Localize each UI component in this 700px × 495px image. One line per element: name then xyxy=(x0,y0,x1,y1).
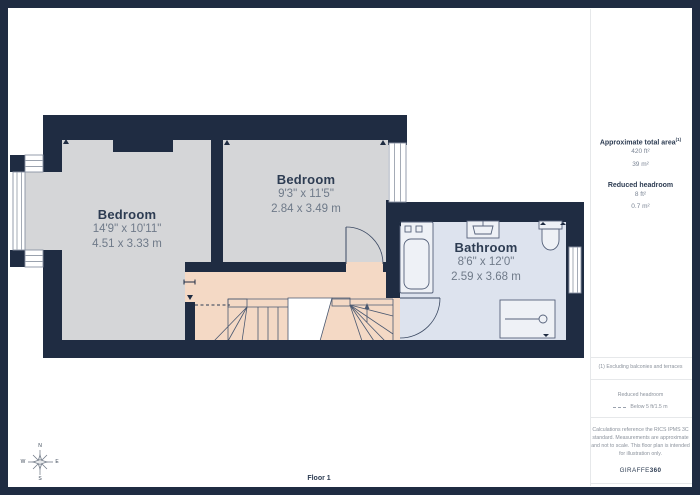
room-label-bathroom: Bathroom 8'6" x 12'0" 2.59 x 3.68 m xyxy=(451,240,521,284)
room-name: Bathroom xyxy=(451,240,521,255)
compass-south-label: S xyxy=(38,476,41,482)
brand-logo: GIRAFFE360 xyxy=(589,467,692,474)
reduced-headroom-metric: 0.7 m² xyxy=(589,201,692,213)
sidebar-legend: Reduced headroom Below 5 ft/1.5 m xyxy=(589,391,692,411)
total-area-imperial: 420 ft² xyxy=(589,146,692,158)
bay-window-west xyxy=(13,172,25,250)
room-label-bedroom-2: Bedroom 9'3" x 11'5" 2.84 x 3.49 m xyxy=(271,172,341,216)
bay-window-south xyxy=(25,250,43,267)
sidebar-divider xyxy=(590,379,692,380)
sidebar-divider-vertical xyxy=(590,9,591,486)
bay-window-north xyxy=(25,155,43,172)
compass-icon xyxy=(28,450,53,475)
sidebar-area-section: Approximate total area(1) 420 ft² 39 m² … xyxy=(589,137,692,214)
reduced-headroom-heading: Reduced headroom xyxy=(589,182,692,189)
sidebar-divider xyxy=(590,417,692,418)
compass-west-label: W xyxy=(21,459,26,465)
legend-heading: Reduced headroom xyxy=(589,391,692,399)
floor-label: Floor 1 xyxy=(307,475,330,482)
room-name: Bedroom xyxy=(271,172,341,187)
total-area-footnote-marker: (1) xyxy=(676,137,682,142)
sink xyxy=(467,221,499,238)
chimney-breast xyxy=(113,135,173,152)
reduced-headroom-dash-icon xyxy=(613,407,626,408)
compass-east-label: E xyxy=(55,459,58,465)
room-dimensions-metric: 4.51 x 3.33 m xyxy=(92,237,162,252)
room-dimensions-metric: 2.59 x 3.68 m xyxy=(451,270,521,285)
room-dimensions-imperial: 8'6" x 12'0" xyxy=(451,255,521,270)
compass-north-label: N xyxy=(38,443,42,449)
total-area-heading: Approximate total area(1) xyxy=(589,137,692,146)
sidebar-divider xyxy=(590,357,692,358)
sidebar-divider xyxy=(590,483,692,484)
bedroom2-east-window xyxy=(389,143,406,202)
room-dimensions-imperial: 14'9" x 10'11" xyxy=(92,222,162,237)
room-name: Bedroom xyxy=(92,207,162,222)
total-area-metric: 39 m² xyxy=(589,159,692,171)
reduced-headroom-imperial: 8 ft² xyxy=(589,189,692,201)
floorplan-page: Bedroom 14'9" x 10'11" 4.51 x 3.33 m Bed… xyxy=(0,0,700,495)
bathtub xyxy=(400,222,433,293)
bathroom-east-window xyxy=(569,247,581,293)
room-dimensions-metric: 2.84 x 3.49 m xyxy=(271,202,341,217)
shower xyxy=(500,300,555,338)
room-label-bedroom-1: Bedroom 14'9" x 10'11" 4.51 x 3.33 m xyxy=(92,207,162,251)
sidebar-footnote: (1) Excluding balconies and terraces xyxy=(589,363,692,371)
room-dimensions-imperial: 9'3" x 11'5" xyxy=(271,187,341,202)
legend-label: Below 5 ft/1.5 m xyxy=(630,403,667,411)
sidebar-disclaimer: Calculations reference the RICS IPMS 3C … xyxy=(591,426,690,458)
